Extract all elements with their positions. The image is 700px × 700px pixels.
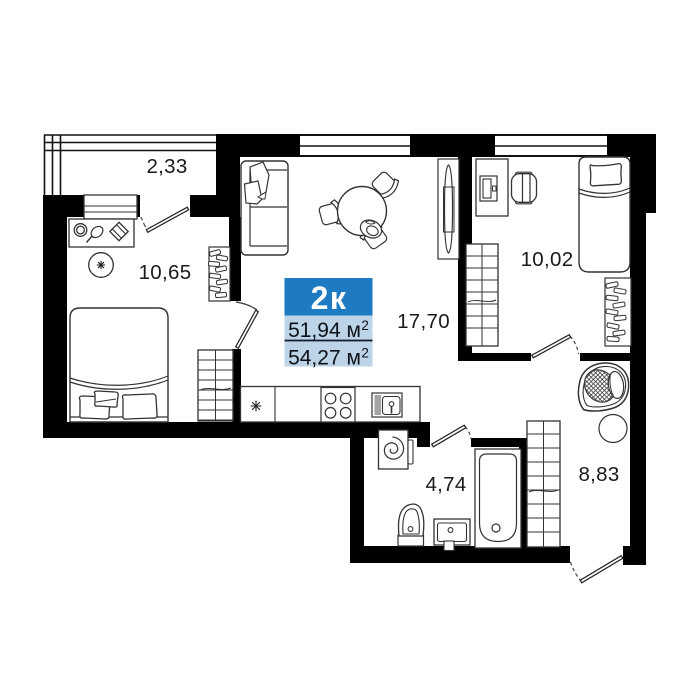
svg-text:10,65: 10,65 [139,261,192,284]
svg-text:2,33: 2,33 [146,155,187,178]
svg-text:4,74: 4,74 [425,473,466,496]
svg-text:8,83: 8,83 [578,463,619,486]
svg-text:10,02: 10,02 [521,248,574,271]
svg-text:51,94 м2: 51,94 м2 [288,318,369,342]
svg-text:54,27 м2: 54,27 м2 [288,346,369,370]
svg-text:2к: 2к [311,280,348,316]
svg-text:17,70: 17,70 [397,310,450,333]
